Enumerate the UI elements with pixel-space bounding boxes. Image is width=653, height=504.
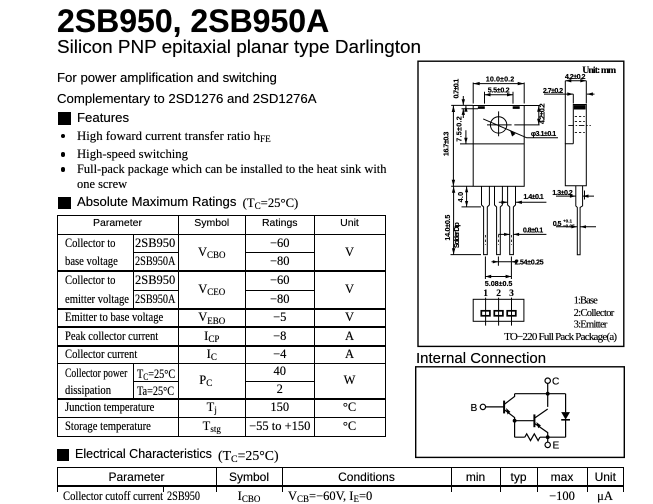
svg-text:2.7±0.2: 2.7±0.2: [543, 86, 563, 95]
svg-text:Solder Dip: Solder Dip: [452, 222, 461, 249]
svg-text:5.08±0.5: 5.08±0.5: [485, 279, 513, 288]
svg-text:5.5±0.2: 5.5±0.2: [488, 86, 510, 95]
svg-text:1: 1: [483, 289, 488, 299]
svg-text:Unit: mm: Unit: mm: [582, 65, 616, 76]
svg-text:C: C: [552, 377, 559, 388]
svg-text:0.5: 0.5: [553, 219, 562, 228]
svg-text:E: E: [553, 440, 560, 451]
svg-text:3: 3: [509, 289, 514, 299]
svg-text:0.7±0.1: 0.7±0.1: [452, 79, 461, 99]
svg-text:3:Emitter: 3:Emitter: [574, 320, 608, 331]
svg-text:4.0: 4.0: [456, 192, 465, 203]
svg-text:1:Base: 1:Base: [574, 295, 599, 306]
svg-text:φ3.1±0.1: φ3.1±0.1: [531, 129, 556, 138]
svg-text:1.3±0.2: 1.3±0.2: [552, 188, 573, 197]
svg-text:2:Collector: 2:Collector: [574, 308, 615, 319]
svg-text:1.4±0.1: 1.4±0.1: [523, 192, 543, 201]
svg-text:14.0±0.5: 14.0±0.5: [443, 215, 452, 241]
svg-text:4.2±0.2: 4.2±0.2: [537, 103, 546, 124]
svg-text:TO−220 Full Pack Package(a): TO−220 Full Pack Package(a): [504, 331, 617, 343]
svg-text:7.5±0.2: 7.5±0.2: [454, 116, 463, 141]
svg-text:2: 2: [496, 289, 501, 299]
svg-text:B: B: [471, 403, 478, 414]
svg-text:−0.05: −0.05: [563, 223, 575, 228]
svg-text:16.7±0.3: 16.7±0.3: [442, 132, 451, 157]
svg-text:0.8±0.1: 0.8±0.1: [523, 225, 543, 234]
svg-text:2.54±0.25: 2.54±0.25: [515, 257, 544, 266]
svg-text:10.0±0.2: 10.0±0.2: [486, 74, 514, 83]
